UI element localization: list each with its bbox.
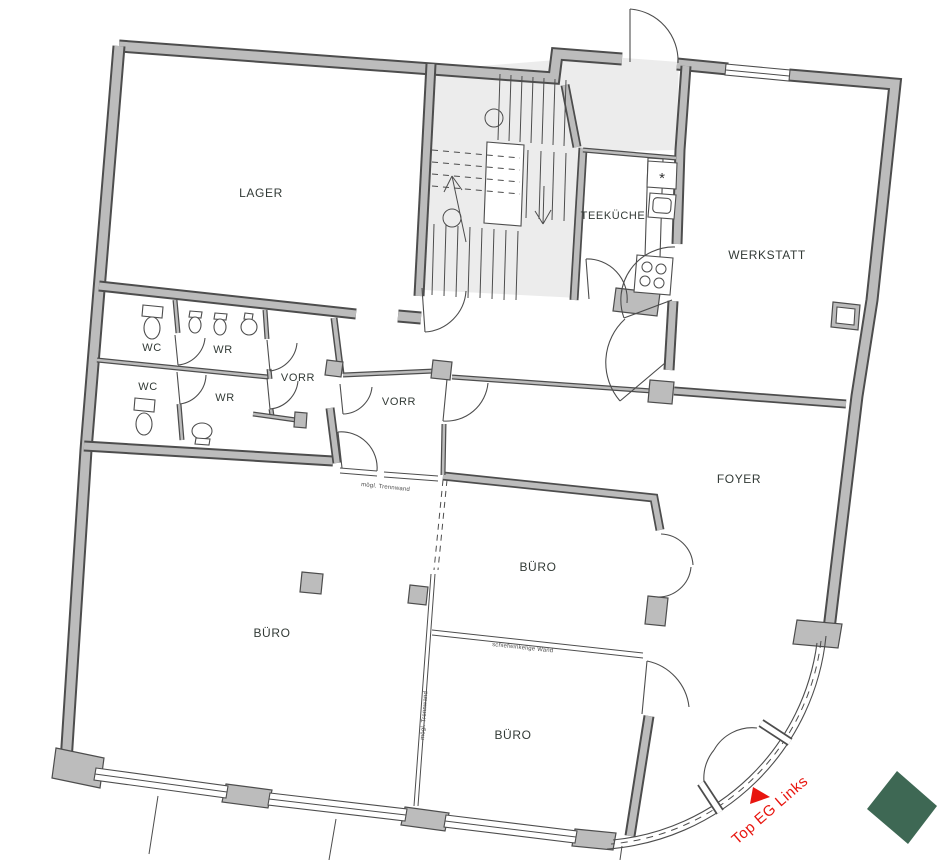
wc-door — [175, 335, 205, 365]
entrance-door — [630, 9, 678, 63]
entrance-marker: Top EG Links — [728, 773, 811, 848]
room-label-lager: LAGER — [239, 186, 283, 200]
room-label-vorr: VORR — [382, 396, 416, 408]
wc-door — [177, 372, 206, 404]
room-label-wc: WC — [142, 342, 162, 354]
dimension-tick — [149, 796, 158, 854]
vorr-corridor-door — [443, 379, 488, 421]
column — [408, 585, 428, 605]
stove — [634, 255, 673, 295]
sink — [192, 423, 212, 439]
buero-door — [642, 661, 689, 714]
sink-symbol: * — [659, 170, 665, 187]
partition-annotation: mögl. Trennwand — [361, 482, 410, 493]
room-label-buero: BÜRO — [494, 728, 531, 742]
kitchen-appliance-inner — [652, 197, 671, 213]
column — [300, 572, 323, 594]
sink — [241, 319, 257, 335]
entrance-label: Top EG Links — [728, 773, 811, 848]
edex-logo: EDEX — [864, 771, 940, 844]
urinal — [214, 319, 226, 335]
wr-door — [267, 340, 297, 371]
dimension-tick — [329, 819, 336, 860]
floor-plan: * — [0, 0, 948, 860]
edex-logo-diamond — [867, 771, 937, 844]
stair-newel — [484, 142, 524, 226]
wall-posts — [52, 288, 860, 850]
room-label-buero: BÜRO — [519, 560, 556, 574]
toilet-bowl — [136, 413, 152, 435]
buero-door — [338, 432, 377, 471]
room-label-buero: BÜRO — [253, 626, 290, 640]
floor-plan-page: * — [0, 0, 948, 860]
room-label-wr: WR — [215, 392, 235, 404]
urinal — [189, 317, 201, 333]
wall-niche-inner — [836, 307, 855, 325]
buero-double-door — [657, 534, 693, 597]
room-label-teekueche: TEEKÜCHE — [581, 210, 646, 222]
partition-annotation: schiefwinkelige Wand — [492, 642, 554, 654]
room-label-foyer: FOYER — [717, 472, 761, 486]
kitchen-fixtures: * — [634, 158, 677, 295]
room-label-wc: WC — [138, 381, 158, 393]
partitions — [340, 468, 643, 806]
room-label-wr: WR — [213, 344, 233, 356]
toilet-tank — [134, 398, 155, 412]
facade-double-door — [704, 728, 757, 782]
toilet-bowl — [144, 317, 160, 339]
room-label-vorr: VORR — [281, 372, 315, 384]
sink-tap — [195, 438, 210, 445]
partition-annotations: mögl. Trennwand schiefwinkelige Wand mög… — [361, 482, 554, 740]
vorr-door — [340, 384, 372, 414]
toilet-tank — [142, 305, 163, 318]
room-label-werkstatt: WERKSTATT — [728, 248, 806, 262]
